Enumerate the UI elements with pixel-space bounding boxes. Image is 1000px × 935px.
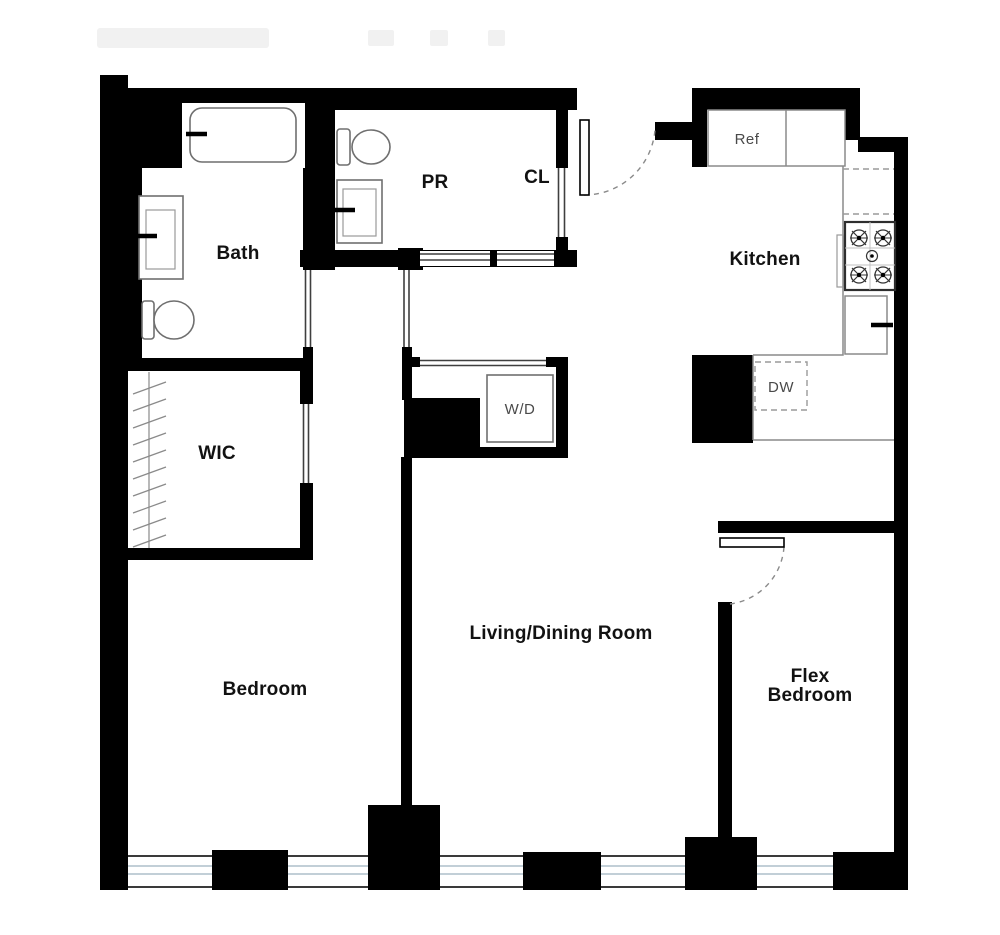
window xyxy=(757,856,833,887)
wall-segment-wic-bottom xyxy=(125,548,313,560)
wall-segment-kitchen-top xyxy=(692,88,860,110)
room-label-flex-line2: Bedroom xyxy=(768,685,853,706)
wall-segment xyxy=(100,75,128,89)
floor-plan: Bath PR CL Kitchen WIC Bedroom Living/Di… xyxy=(0,0,1000,935)
walls xyxy=(100,75,908,890)
stove-knob-dot xyxy=(870,254,874,258)
room-label-wic: WIC xyxy=(198,443,236,464)
refrigerator-label: Ref xyxy=(735,131,760,148)
kitchen-counter-top xyxy=(708,110,845,166)
wall-segment xyxy=(128,103,182,168)
cl-side-panel xyxy=(559,168,565,237)
bath-toilet-tank xyxy=(142,301,154,339)
pr-toilet-tank xyxy=(337,129,350,165)
wall-segment-cl-right-lower xyxy=(556,237,568,252)
wall-pier xyxy=(523,852,601,890)
floor-plan-page: Bath PR CL Kitchen WIC Bedroom Living/Di… xyxy=(0,0,1000,935)
window xyxy=(601,856,685,887)
window xyxy=(440,856,523,887)
wall-segment-cl-right-upper xyxy=(556,88,568,168)
entry-door xyxy=(580,120,655,195)
wall-segment-wd-right xyxy=(556,358,568,458)
window xyxy=(128,856,212,887)
wall-segment xyxy=(404,357,420,367)
wall-segment-wd-bottom xyxy=(404,447,568,458)
wall-segment-entry-stub xyxy=(655,122,692,140)
wall-segment xyxy=(546,357,568,367)
window xyxy=(288,856,368,887)
door-leaf xyxy=(720,538,784,547)
wall-segment-wic-top xyxy=(100,358,313,371)
wall-segment xyxy=(845,110,860,140)
wall-pier xyxy=(685,837,757,890)
wall-segment-corridor xyxy=(402,347,412,400)
room-label-cl: CL xyxy=(524,167,550,188)
washer-dryer-label: W/D xyxy=(505,401,536,418)
flex-bedroom-door xyxy=(720,538,784,604)
wall-segment-bath-pr-divider xyxy=(303,88,335,270)
pr-door-opening xyxy=(420,251,490,266)
faded-header-text xyxy=(97,28,505,48)
wic-door xyxy=(304,404,309,483)
powder-room-fixtures xyxy=(333,129,390,243)
room-label-pr: PR xyxy=(422,172,449,193)
watermark-block xyxy=(488,30,505,46)
room-label-flex-line1: Flex xyxy=(791,666,830,687)
wall-segment-left-exterior xyxy=(100,88,128,890)
wall-segment xyxy=(398,248,423,270)
wd-sliding-door xyxy=(420,361,546,366)
room-label-bath: Bath xyxy=(216,243,259,264)
wall-segment-flex-top xyxy=(718,521,894,533)
watermark-block xyxy=(430,30,448,46)
bath-toilet-bowl xyxy=(154,301,194,339)
wall-pier xyxy=(833,852,908,890)
wall-pier xyxy=(368,805,440,890)
room-label-living-dining: Living/Dining Room xyxy=(469,623,652,644)
wall-segment-bedroom-living xyxy=(401,457,412,807)
watermark-block xyxy=(97,28,269,48)
wall-segment-flex-left xyxy=(718,602,732,837)
watermark-block xyxy=(368,30,394,46)
wall-segment-kitchen-peninsula xyxy=(692,355,753,443)
dishwasher-label: DW xyxy=(768,379,794,396)
cl-door-opening xyxy=(497,251,554,266)
door-leaf xyxy=(580,120,589,195)
pr-toilet-bowl xyxy=(352,130,390,164)
wic-closet-rod xyxy=(133,372,166,548)
room-label-bedroom: Bedroom xyxy=(223,679,308,700)
wall-segment-wic-right-upper xyxy=(300,358,313,404)
room-label-kitchen: Kitchen xyxy=(729,249,800,270)
corridor-opening xyxy=(404,270,409,347)
door-swing-arc xyxy=(584,130,655,195)
bath-pocket-door xyxy=(306,270,311,347)
wall-segment-kitchen-left xyxy=(692,110,707,167)
wall-pier xyxy=(212,850,288,890)
door-swing-arc xyxy=(730,547,784,604)
